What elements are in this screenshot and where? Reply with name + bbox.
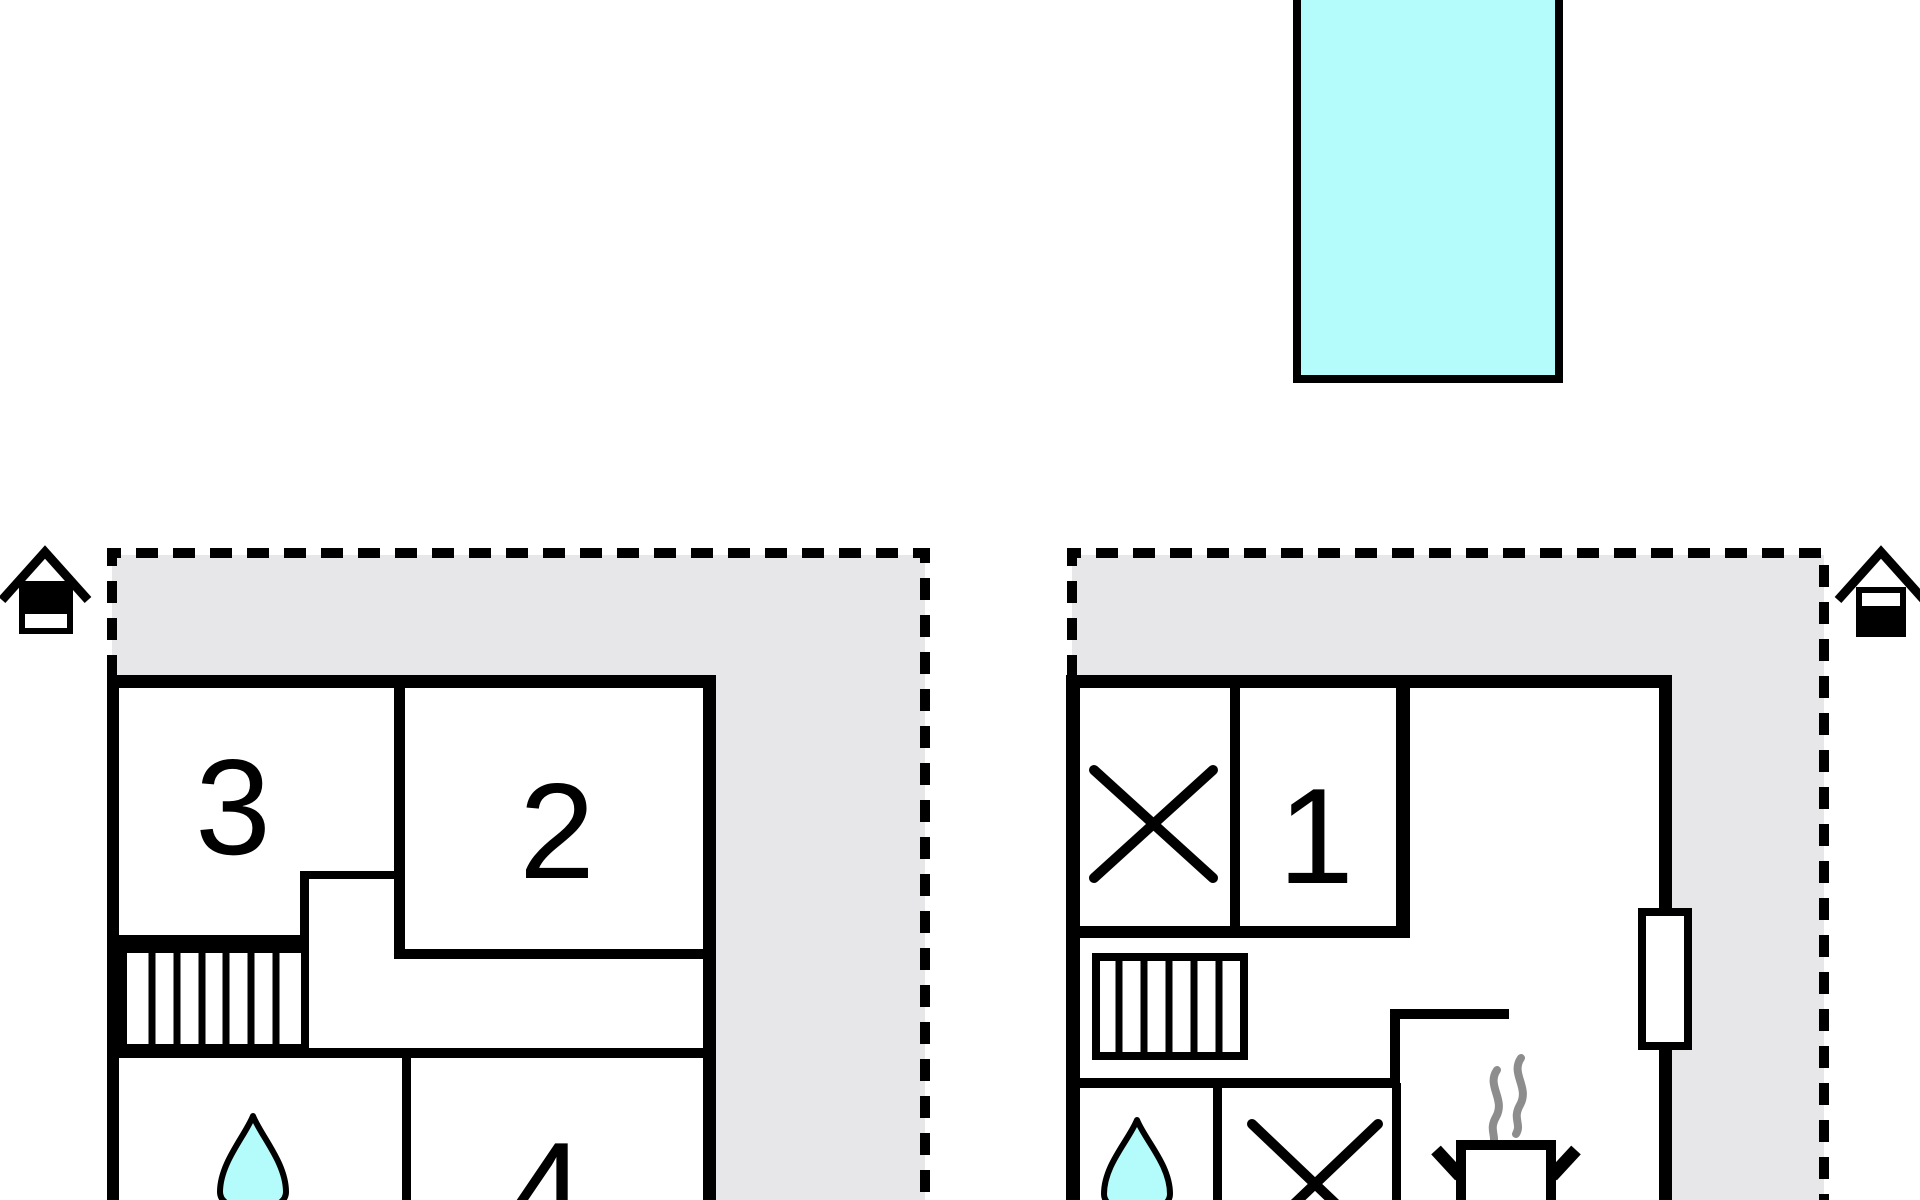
room-label-1: 1 bbox=[1278, 768, 1354, 904]
wall-bath-room4 bbox=[402, 1058, 411, 1200]
left-stairs bbox=[123, 949, 305, 1048]
right-terrace-top-area bbox=[1072, 555, 1824, 675]
steam-squiggle bbox=[1516, 1058, 1523, 1134]
room3-step-notch-horizontal bbox=[300, 871, 394, 879]
chimney-white-half bbox=[22, 611, 70, 631]
wall-room3-room2 bbox=[394, 688, 405, 954]
steaming-pot-icon bbox=[1436, 1058, 1576, 1200]
left-house-right-wall bbox=[703, 675, 716, 1200]
window-opening bbox=[1642, 912, 1688, 1046]
pot-body bbox=[1461, 1145, 1551, 1200]
water-drop-icon bbox=[220, 1116, 286, 1200]
room-label-4: 4 bbox=[509, 1122, 585, 1200]
right-house-plan bbox=[1066, 675, 1672, 1200]
chimney-black-half bbox=[1856, 612, 1906, 637]
kitchen-counter-side-edge bbox=[1390, 1009, 1400, 1088]
right-house-top-wall bbox=[1066, 675, 1672, 688]
room2-bottom-wall bbox=[394, 949, 716, 959]
lower-hall-wall bbox=[1066, 1078, 1395, 1088]
right-stairs bbox=[1096, 957, 1244, 1056]
room3-bottom-wall bbox=[107, 935, 309, 945]
left-terrace-side-area bbox=[716, 675, 925, 1200]
room1-right-wall bbox=[1396, 688, 1410, 932]
floor-plan-drawing bbox=[0, 0, 1920, 1200]
wall-bath-cross-room bbox=[1213, 1088, 1222, 1200]
chimney-black-half bbox=[19, 581, 73, 608]
room-label-3: 3 bbox=[195, 739, 271, 875]
cross-mark-upper bbox=[1094, 770, 1213, 878]
cross-room-right-wall bbox=[1392, 1083, 1401, 1200]
room-label-2: 2 bbox=[519, 763, 595, 899]
pool bbox=[1297, 0, 1559, 379]
floor-plan-page: 3 2 1 4 bbox=[0, 0, 1920, 1200]
right-terrace-side-area bbox=[1672, 675, 1824, 1200]
left-house-with-chimney-icon bbox=[2, 552, 88, 631]
chimney-white-half bbox=[1859, 590, 1903, 609]
left-house-top-wall bbox=[107, 675, 716, 688]
left-terrace-top-area bbox=[112, 555, 925, 675]
kitchen-counter-top-edge bbox=[1390, 1009, 1509, 1019]
right-terrace bbox=[1072, 553, 1824, 1200]
room1-bottom-wall bbox=[1066, 926, 1410, 938]
steam-squiggle bbox=[1492, 1070, 1499, 1146]
room3-step-notch-vertical bbox=[300, 871, 309, 942]
wall-cross-room-room1 bbox=[1230, 688, 1240, 932]
right-house-with-chimney-icon bbox=[1838, 552, 1920, 637]
water-drop-icon bbox=[1104, 1120, 1170, 1200]
cross-mark-lower bbox=[1252, 1124, 1378, 1200]
